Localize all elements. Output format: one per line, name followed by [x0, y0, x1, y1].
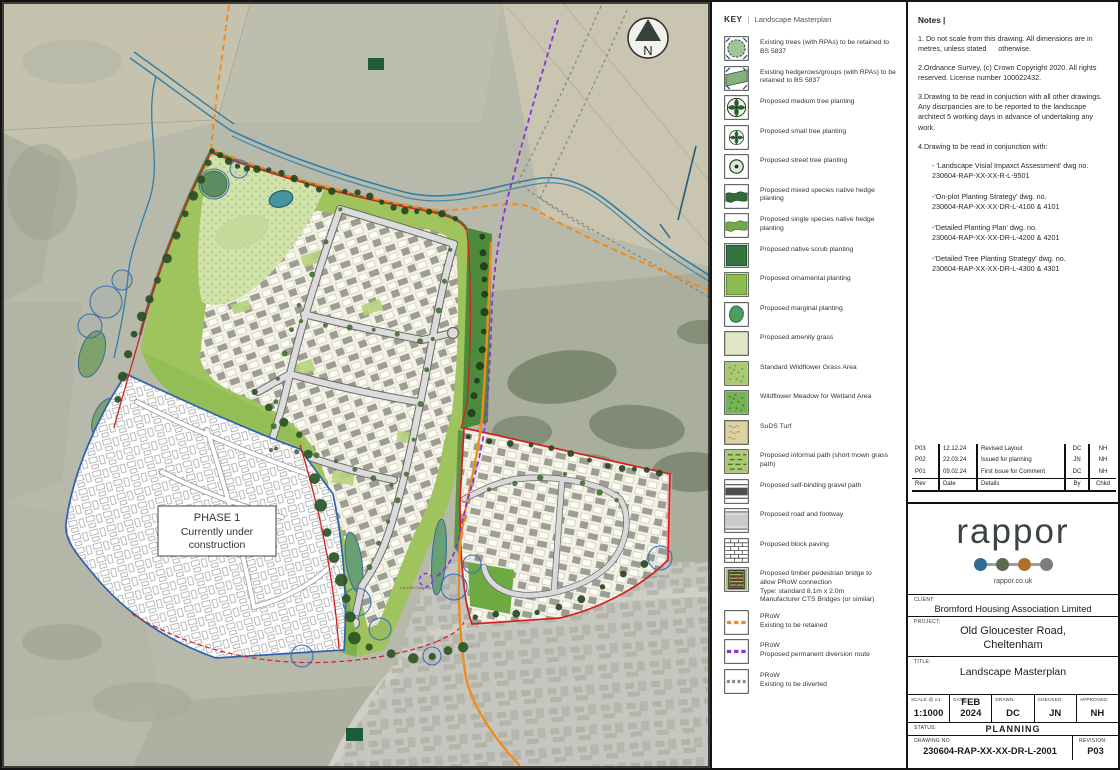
- status-section: STATUS: PLANNING: [908, 722, 1118, 735]
- logo-dot-link: [1031, 563, 1040, 566]
- client-value: Bromford Housing Association Limited: [908, 604, 1118, 614]
- svg-text:Currently under: Currently under: [181, 526, 254, 538]
- legend-label: Proposed block paving: [760, 538, 829, 550]
- revision-cell: Revised Layout: [976, 444, 1064, 455]
- legend-swatch-single-hedge: [724, 213, 749, 238]
- logo-dot-link: [987, 563, 996, 566]
- svg-text:PHASE 1: PHASE 1: [194, 512, 240, 524]
- legend-item: Proposed road and footway: [724, 508, 900, 533]
- note-paragraph: 4.Drawing to be read in conjunction with…: [918, 142, 1110, 152]
- masterplan-svg: PHASE 1 Currently under construction Car…: [2, 2, 710, 768]
- legend-item: Wildflower Meadow for Wetland Area: [724, 390, 900, 415]
- legend-swatch-small-tree: [724, 125, 749, 150]
- logo-dot: [996, 558, 1009, 571]
- titleblock-field-value: DC: [992, 708, 1033, 719]
- legend-list: Existing trees (with RPAs) to be retaine…: [724, 36, 900, 694]
- legend-label: Existing hedgerows/groups (with RPAs) to…: [760, 66, 900, 87]
- legend-swatch-existing-trees: [724, 36, 749, 61]
- revision-cell: First Issue for Comment: [976, 467, 1064, 478]
- legend-label: Proposed self-binding gravel path: [760, 479, 861, 491]
- phase1-label: PHASE 1 Currently under construction: [158, 506, 276, 556]
- legend-item: Proposed timber pedestrian bridge to all…: [724, 567, 900, 605]
- drawing-number-label: DRAWING NO:: [914, 738, 952, 744]
- legend-item: Proposed native scrub planting: [724, 243, 900, 268]
- notes-title: Notes |: [918, 16, 1110, 25]
- client-label: CLIENT:: [914, 597, 935, 603]
- brand-block: rappor rappor.co.uk: [908, 502, 1118, 594]
- revision-cell: 09.02.24: [938, 467, 976, 478]
- titleblock-field-label: DRAWN:: [995, 697, 1015, 702]
- legend-swatch-scrub: [724, 243, 749, 268]
- legend-item: Existing hedgerows/groups (with RPAs) to…: [724, 66, 900, 91]
- rappor-logo: rappor: [908, 512, 1118, 552]
- client-section: CLIENT: Bromford Housing Association Lim…: [908, 594, 1118, 616]
- legend-label: Proposed marginal planting: [760, 302, 843, 314]
- drawing-number-value: 230604-RAP-XX-XX-DR-L-2001: [908, 746, 1072, 756]
- revision-cell: Rev: [912, 479, 938, 490]
- titleblock-field-value: JN: [1035, 708, 1076, 719]
- revision-row: P0109.02.24First Issue for CommentDCNH: [912, 467, 1116, 478]
- title-value: Landscape Masterplan: [908, 666, 1118, 678]
- legend-item: Standard Wildflower Grass Area: [724, 361, 900, 386]
- titleblock-field-label: APPROVED:: [1080, 697, 1109, 702]
- titleblock-field: SCALE @ A1:1:1000: [908, 695, 949, 722]
- legend-item: Proposed street tree planting: [724, 154, 900, 179]
- title-section: TITLE: Landscape Masterplan: [908, 656, 1118, 694]
- legend-swatch-gravel-path: [724, 479, 749, 504]
- revision-label: REVISION:: [1079, 738, 1107, 744]
- revision-header-row: RevDateDetailsByChkd: [912, 478, 1116, 490]
- notes-references: - 'Landscape Visial Impaxct Assessment' …: [918, 161, 1110, 275]
- legend-item: PRoW Existing to be retained: [724, 610, 900, 635]
- legend-swatch-road-footway: [724, 508, 749, 533]
- legend-label: Proposed amenity grass: [760, 331, 833, 343]
- revision-cell: DC: [1064, 444, 1088, 455]
- note-paragraph: 3.Drawing to be read in conjuction with …: [918, 92, 1110, 132]
- brand-url: rappor.co.uk: [908, 578, 1118, 585]
- legend-label: PRoW Proposed permanent diversion route: [760, 639, 870, 660]
- titleblock-field: DATE:FEB 2024: [949, 695, 991, 722]
- revision-value: P03: [1073, 746, 1118, 756]
- revision-cell: Chkd: [1088, 479, 1116, 490]
- revision-cell: NH: [1088, 467, 1116, 478]
- logo-dot: [1040, 558, 1053, 571]
- key-panel: KEY|Landscape Masterplan Existing trees …: [710, 2, 908, 768]
- legend-swatch-street-tree: [724, 154, 749, 179]
- legend-label: SuDS Turf: [760, 420, 791, 432]
- legend-label: Proposed single species native hedge pla…: [760, 213, 900, 234]
- revision-cell: NH: [1088, 444, 1116, 455]
- titleblock-field: DRAWN:DC: [991, 695, 1033, 722]
- legend-swatch-suds-turf: [724, 420, 749, 445]
- existing-feature-block: [346, 728, 363, 741]
- legend-label: Proposed road and footway: [760, 508, 843, 520]
- note-reference: -'Detailed Tree Planting Strategy' dwg. …: [932, 254, 1110, 274]
- title-label: TITLE:: [914, 659, 931, 665]
- legend-item: PRoW Proposed permanent diversion route: [724, 639, 900, 664]
- legend-item: Proposed small tree planting: [724, 125, 900, 150]
- legend-label: Proposed timber pedestrian bridge to all…: [760, 567, 874, 605]
- legend-swatch-wildflower-wetland: [724, 390, 749, 415]
- legend-item: Proposed block paving: [724, 538, 900, 563]
- drawing-sheet: PHASE 1 Currently under construction Car…: [0, 0, 1120, 770]
- titleblock-field: APPROVED:NH: [1076, 695, 1118, 722]
- titleblock-field-value: 1:1000: [908, 708, 949, 719]
- logo-dot: [1018, 558, 1031, 571]
- note-reference: -'On-plot Planting Strategy' dwg. no. 23…: [932, 192, 1110, 212]
- legend-swatch-informal-path: [724, 449, 749, 474]
- legend-swatch-marginal: [724, 302, 749, 327]
- revision-cell: JN: [1064, 455, 1088, 466]
- legend-label: Proposed native scrub planting: [760, 243, 853, 255]
- titleblock-field-value: NH: [1077, 708, 1118, 719]
- key-title: KEY: [724, 14, 742, 24]
- north-arrow-icon: N: [628, 18, 668, 58]
- legend-label: Proposed small tree planting: [760, 125, 846, 137]
- legend-label: Proposed medium tree planting: [760, 95, 854, 107]
- status-value: PLANNING: [908, 724, 1118, 734]
- titleblock-field: CHECKED:JN: [1034, 695, 1076, 722]
- note-paragraph: 2.Ordnance Survey, (c) Crown Copyright 2…: [918, 63, 1110, 83]
- legend-swatch-bridge: [724, 567, 749, 592]
- legend-item: Proposed informal path (short mown grass…: [724, 449, 900, 474]
- legend-item: Proposed marginal planting: [724, 302, 900, 327]
- key-header: KEY|Landscape Masterplan: [724, 14, 900, 24]
- legend-swatch-existing-hedgerows: [724, 66, 749, 91]
- scale-grid: SCALE @ A1:1:1000DATE:FEB 2024DRAWN:DCCH…: [908, 694, 1118, 722]
- legend-label: Proposed mixed species native hedge plan…: [760, 184, 900, 205]
- legend-swatch-medium-tree: [724, 95, 749, 120]
- revision-cell: 22.03.24: [938, 455, 976, 466]
- titleblock-field-value: FEB 2024: [950, 697, 991, 719]
- revision-cell: DC: [1064, 467, 1088, 478]
- legend-label: PRoW Existing to be retained: [760, 610, 827, 631]
- svg-text:construction: construction: [189, 539, 246, 551]
- legend-item: Proposed amenity grass: [724, 331, 900, 356]
- note-reference: -'Detailed Planting Plan' dwg. no. 23060…: [932, 223, 1110, 243]
- revision-cell: P02: [912, 455, 938, 466]
- notes-paragraphs: 1. Do not scale from this drawing. All d…: [918, 34, 1110, 152]
- note-paragraph: 1. Do not scale from this drawing. All d…: [918, 34, 1110, 54]
- legend-item: Proposed ornamental planting: [724, 272, 900, 297]
- legend-item: Existing trees (with RPAs) to be retaine…: [724, 36, 900, 61]
- revision-cell: P03: [912, 444, 938, 455]
- drawing-number-cell: DRAWING NO: 230604-RAP-XX-XX-DR-L-2001: [908, 736, 1072, 760]
- revision-row: P0222.03.24Issued for planningJNNH: [912, 455, 1116, 466]
- project-section: PROJECT: Old Gloucester Road, Cheltenham: [908, 616, 1118, 656]
- legend-label: Proposed street tree planting: [760, 154, 847, 166]
- legend-item: Proposed self-binding gravel path: [724, 479, 900, 504]
- logo-dots: [908, 558, 1118, 571]
- car-hire-label: Car Hire Company: [400, 586, 432, 590]
- revision-cell: REVISION: P03: [1072, 736, 1118, 760]
- notes-block: Notes | 1. Do not scale from this drawin…: [918, 16, 1110, 285]
- legend-swatch-mixed-hedge: [724, 184, 749, 209]
- revision-cell: 12.12.24: [938, 444, 976, 455]
- legend-label: Proposed ornamental planting: [760, 272, 851, 284]
- legend-item: Proposed single species native hedge pla…: [724, 213, 900, 238]
- legend-item: Proposed mixed species native hedge plan…: [724, 184, 900, 209]
- logo-dot-link: [1009, 563, 1018, 566]
- revision-cell: By: [1064, 479, 1088, 490]
- logo-dot: [974, 558, 987, 571]
- legend-label: Wildflower Meadow for Wetland Area: [760, 390, 871, 402]
- legend-label: PRoW Existing to be diverted: [760, 669, 827, 690]
- legend-swatch-wildflower-standard: [724, 361, 749, 386]
- existing-feature-block: [368, 58, 384, 70]
- titleblock-field-label: SCALE @ A1:: [911, 697, 942, 702]
- legend-swatch-ornamental: [724, 272, 749, 297]
- legend-swatch-amenity: [724, 331, 749, 356]
- legend-swatch-prow-retained: [724, 610, 749, 635]
- note-reference: - 'Landscape Visial Impaxct Assessment' …: [932, 161, 1110, 181]
- project-label: PROJECT:: [914, 619, 941, 625]
- revision-table: P0312.12.24Revised LayoutDCNHP0222.03.24…: [912, 444, 1116, 492]
- revision-cell: Details: [976, 479, 1064, 490]
- legend-item: PRoW Existing to be diverted: [724, 669, 900, 694]
- revision-cell: Issued for planning: [976, 455, 1064, 466]
- key-separator: |: [747, 15, 749, 24]
- legend-label: Existing trees (with RPAs) to be retaine…: [760, 36, 900, 57]
- revision-cell: P01: [912, 467, 938, 478]
- revision-cell: NH: [1088, 455, 1116, 466]
- legend-label: Standard Wildflower Grass Area: [760, 361, 857, 373]
- notes-panel: Notes | 1. Do not scale from this drawin…: [908, 2, 1118, 768]
- legend-item: SuDS Turf: [724, 420, 900, 445]
- revision-cell: Date: [938, 479, 976, 490]
- titleblock-field-label: CHECKED:: [1038, 697, 1063, 702]
- legend-swatch-prow-diverted: [724, 669, 749, 694]
- legend-swatch-prow-diversion: [724, 639, 749, 664]
- revision-row: P0312.12.24Revised LayoutDCNH: [912, 444, 1116, 455]
- legend-item: Proposed medium tree planting: [724, 95, 900, 120]
- legend-swatch-block-paving: [724, 538, 749, 563]
- project-value: Old Gloucester Road, Cheltenham: [908, 625, 1118, 653]
- site-plan-map: PHASE 1 Currently under construction Car…: [2, 2, 710, 768]
- drawing-number-section: DRAWING NO: 230604-RAP-XX-XX-DR-L-2001 R…: [908, 735, 1118, 760]
- key-subtitle: Landscape Masterplan: [754, 15, 831, 24]
- svg-text:N: N: [643, 43, 652, 58]
- legend-label: Proposed informal path (short mown grass…: [760, 449, 900, 470]
